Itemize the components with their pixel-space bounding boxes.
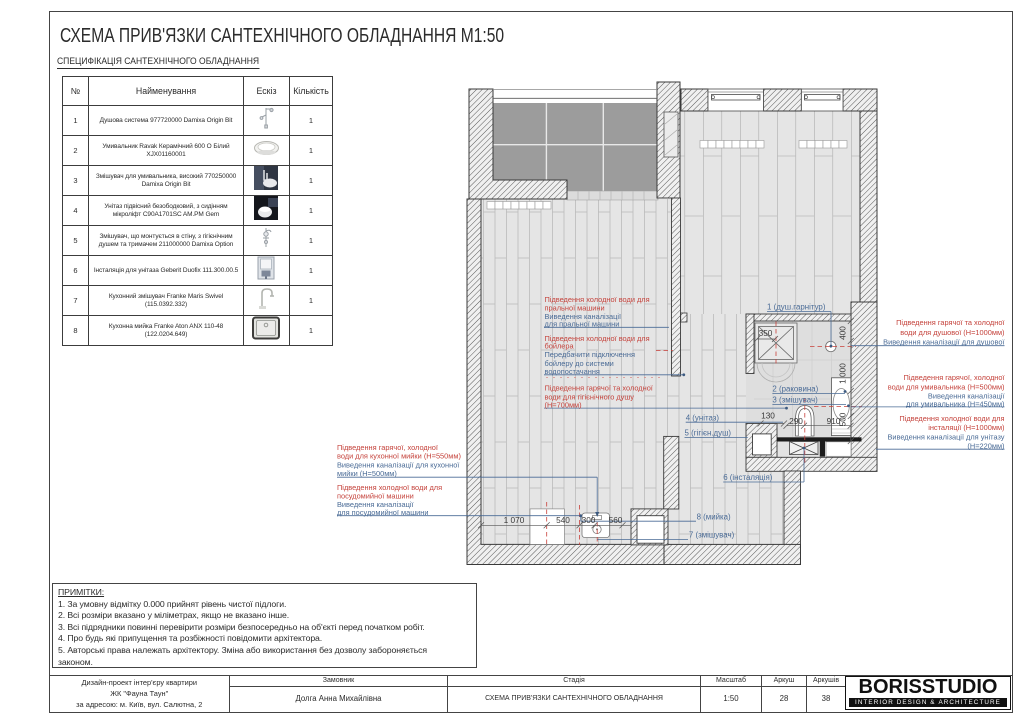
svg-text:Підведення гарячої та холодної: Підведення гарячої та холодної xyxy=(545,383,653,392)
svg-text:500: 500 xyxy=(838,412,848,426)
svg-text:Виведення каналізації для душо: Виведення каналізації для душової xyxy=(883,338,1004,347)
svg-text:водопостачання: водопостачання xyxy=(545,367,600,376)
svg-text:Підведення гарячої та холодної: Підведення гарячої та холодної xyxy=(896,318,1004,327)
svg-text:води для умивальника (Н=500мм): води для умивальника (Н=500мм) xyxy=(888,382,1005,391)
svg-text:5 (гігієн.душ): 5 (гігієн.душ) xyxy=(685,429,732,438)
svg-text:560: 560 xyxy=(609,515,623,525)
svg-text:1 000: 1 000 xyxy=(838,363,848,384)
svg-text:2 (раковина): 2 (раковина) xyxy=(772,384,818,393)
svg-text:бойлера: бойлера xyxy=(545,341,575,350)
svg-text:для пральної машини: для пральної машини xyxy=(545,320,620,329)
svg-text:1 (душ.гарнітур): 1 (душ.гарнітур) xyxy=(767,303,826,312)
svg-text:8 (мийка): 8 (мийка) xyxy=(697,512,731,521)
svg-text:Підведення холодної води для: Підведення холодної води для xyxy=(899,414,1004,423)
svg-text:4 (унітаз): 4 (унітаз) xyxy=(686,413,720,422)
svg-text:350: 350 xyxy=(759,328,773,338)
svg-text:7 (змішувач): 7 (змішувач) xyxy=(689,531,735,540)
svg-text:(Н=700мм): (Н=700мм) xyxy=(545,400,582,409)
svg-text:300: 300 xyxy=(582,515,596,525)
svg-text:290: 290 xyxy=(789,416,803,426)
svg-text:для умивальника (Н=450мм): для умивальника (Н=450мм) xyxy=(906,399,1004,408)
svg-text:1 070: 1 070 xyxy=(504,515,525,525)
svg-text:540: 540 xyxy=(556,515,570,525)
svg-text:130: 130 xyxy=(761,411,775,421)
svg-text:(Н=220мм): (Н=220мм) xyxy=(967,442,1004,451)
svg-text:Передбачити підключення: Передбачити підключення xyxy=(545,350,635,359)
svg-text:400: 400 xyxy=(838,326,848,340)
svg-text:інсталяції (Н=1000мм): інсталяції (Н=1000мм) xyxy=(928,423,1004,432)
svg-text:води для душової (Н=1000мм): води для душової (Н=1000мм) xyxy=(900,328,1004,337)
svg-text:6 (інсталяція): 6 (інсталяція) xyxy=(723,473,773,482)
svg-text:мийки (Н=500мм): мийки (Н=500мм) xyxy=(337,469,397,478)
svg-text:3 (змішувач): 3 (змішувач) xyxy=(772,396,818,405)
svg-text:води для кухонної мийки (Н=550: води для кухонної мийки (Н=550мм) xyxy=(337,452,461,461)
svg-text:для посудомийної машини: для посудомийної машини xyxy=(337,508,428,517)
svg-text:Підведення гарячої, холодної: Підведення гарячої, холодної xyxy=(904,373,1005,382)
svg-text:Виведення каналізації для уніт: Виведення каналізації для унітазу xyxy=(887,433,1004,442)
